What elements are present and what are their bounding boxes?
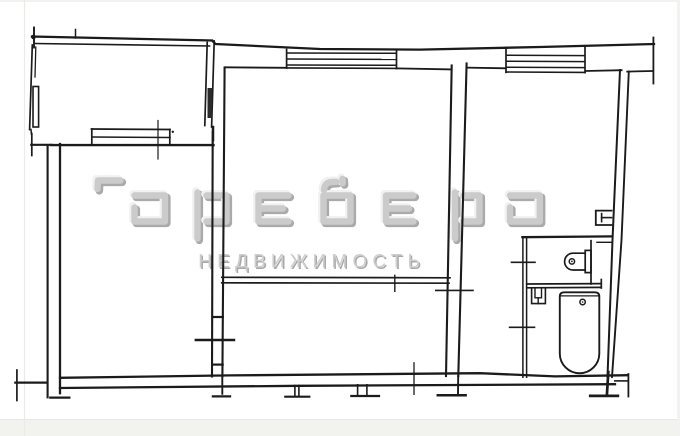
svg-text:НЕДВИЖИМОСТЬ: НЕДВИЖИМОСТЬ — [198, 252, 425, 273]
